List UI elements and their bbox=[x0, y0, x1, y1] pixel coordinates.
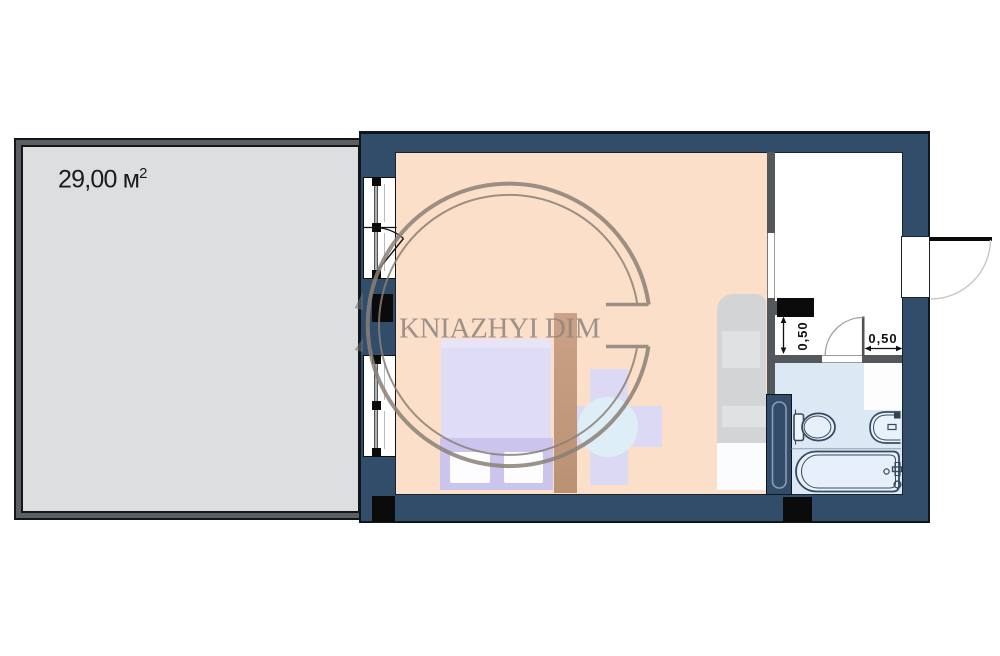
svg-text:KNIAZHYI DIM: KNIAZHYI DIM bbox=[399, 313, 600, 345]
svg-text:0,50: 0,50 bbox=[795, 321, 810, 350]
svg-text:0,50: 0,50 bbox=[868, 331, 897, 346]
